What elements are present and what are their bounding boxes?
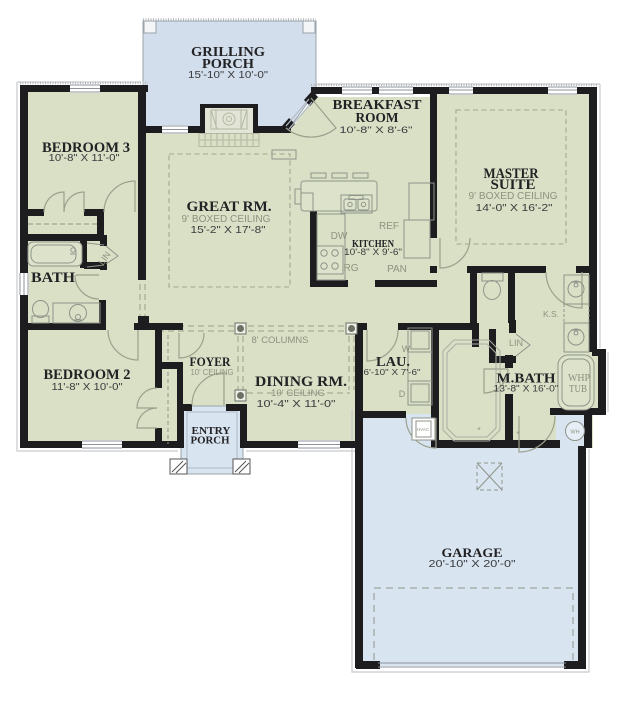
svg-text:10'-8" X 9'-6": 10'-8" X 9'-6"	[344, 247, 402, 258]
svg-text:HVAC: HVAC	[417, 427, 430, 432]
svg-text:9' BOXED CEILING: 9' BOXED CEILING	[469, 191, 558, 202]
svg-text:11'-8" X 10'-0": 11'-8" X 10'-0"	[52, 382, 124, 393]
svg-text:PAN: PAN	[387, 264, 407, 275]
svg-text:W: W	[402, 344, 411, 354]
svg-text:FOYER: FOYER	[190, 354, 232, 369]
svg-text:PORCH: PORCH	[191, 435, 230, 447]
svg-text:BATH: BATH	[31, 270, 76, 286]
svg-text:WH: WH	[570, 430, 579, 436]
svg-text:10' CEILING: 10' CEILING	[191, 368, 234, 377]
svg-text:15'-10" X 10'-0": 15'-10" X 10'-0"	[188, 70, 269, 81]
svg-text:10'-8" X 11'-0": 10'-8" X 11'-0"	[49, 153, 121, 164]
svg-text:REF: REF	[379, 221, 399, 232]
svg-text:10'-4" X 11'-0": 10'-4" X 11'-0"	[257, 399, 337, 410]
svg-text:DW: DW	[331, 231, 348, 242]
svg-text:K.S.: K.S.	[543, 309, 559, 319]
svg-text:BEDROOM 2: BEDROOM 2	[44, 367, 131, 383]
svg-text:14'-0" X 16'-2": 14'-0" X 16'-2"	[476, 202, 553, 214]
svg-text:LIN: LIN	[509, 338, 523, 348]
svg-text:ROOM: ROOM	[356, 110, 399, 125]
svg-text:*: *	[516, 430, 519, 439]
svg-text:6'-10" X 7'-6": 6'-10" X 7'-6"	[364, 367, 421, 377]
svg-text:*: *	[477, 426, 480, 435]
svg-text:GREAT RM.: GREAT RM.	[187, 199, 272, 215]
svg-text:RG: RG	[344, 263, 359, 274]
svg-text:10'-8" X 8'-6": 10'-8" X 8'-6"	[340, 125, 413, 136]
svg-text:15'-2" X 17'-8": 15'-2" X 17'-8"	[191, 224, 266, 236]
svg-text:10' CEILING: 10' CEILING	[271, 388, 325, 398]
svg-text:8' COLUMNS: 8' COLUMNS	[252, 335, 309, 345]
svg-text:D: D	[399, 389, 406, 399]
svg-text:WHP: WHP	[568, 373, 590, 384]
svg-text:TUB: TUB	[569, 384, 587, 395]
svg-text:20'-10" X 20'-0": 20'-10" X 20'-0"	[429, 558, 516, 570]
svg-text:13'-8" X 16'-0": 13'-8" X 16'-0"	[494, 384, 559, 394]
